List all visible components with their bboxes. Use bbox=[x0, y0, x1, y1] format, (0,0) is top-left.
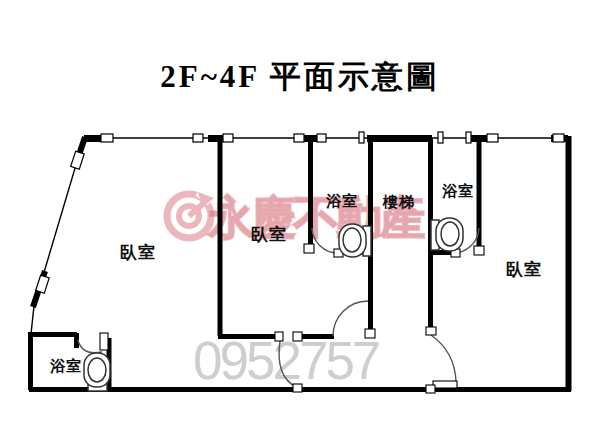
door-frame-caps bbox=[100, 244, 484, 393]
door-arc-entry bbox=[431, 335, 456, 382]
room-label-bathroom-right: 浴室 bbox=[442, 182, 474, 201]
room-label-bedroom-middle: 臥室 bbox=[251, 223, 287, 246]
door-arc-corridor-right bbox=[333, 301, 368, 336]
room-label-stairs: 樓梯 bbox=[383, 193, 415, 212]
door-arc-bathroom-bl bbox=[78, 340, 102, 353]
floorplan-page: 永慶不動產 0952757 bbox=[0, 0, 600, 424]
window-markers bbox=[36, 132, 564, 293]
room-label-bathroom-middle: 浴室 bbox=[326, 192, 358, 211]
page-title: 2F~4F 平面示意圖 bbox=[160, 56, 440, 98]
outer-wall-thin bbox=[31, 138, 568, 390]
room-label-bathroom-bl: 浴室 bbox=[50, 357, 82, 376]
door-arc-corridor-left bbox=[279, 341, 296, 387]
room-label-bedroom-left: 臥室 bbox=[120, 241, 156, 264]
toilet-icon-mid-bathroom bbox=[339, 224, 371, 257]
toilet-icon-bl-bathroom bbox=[84, 353, 110, 391]
room-label-bedroom-right: 臥室 bbox=[506, 258, 542, 281]
wall-layer bbox=[28, 136, 571, 391]
toilet-icon-right-bathroom bbox=[431, 218, 463, 251]
